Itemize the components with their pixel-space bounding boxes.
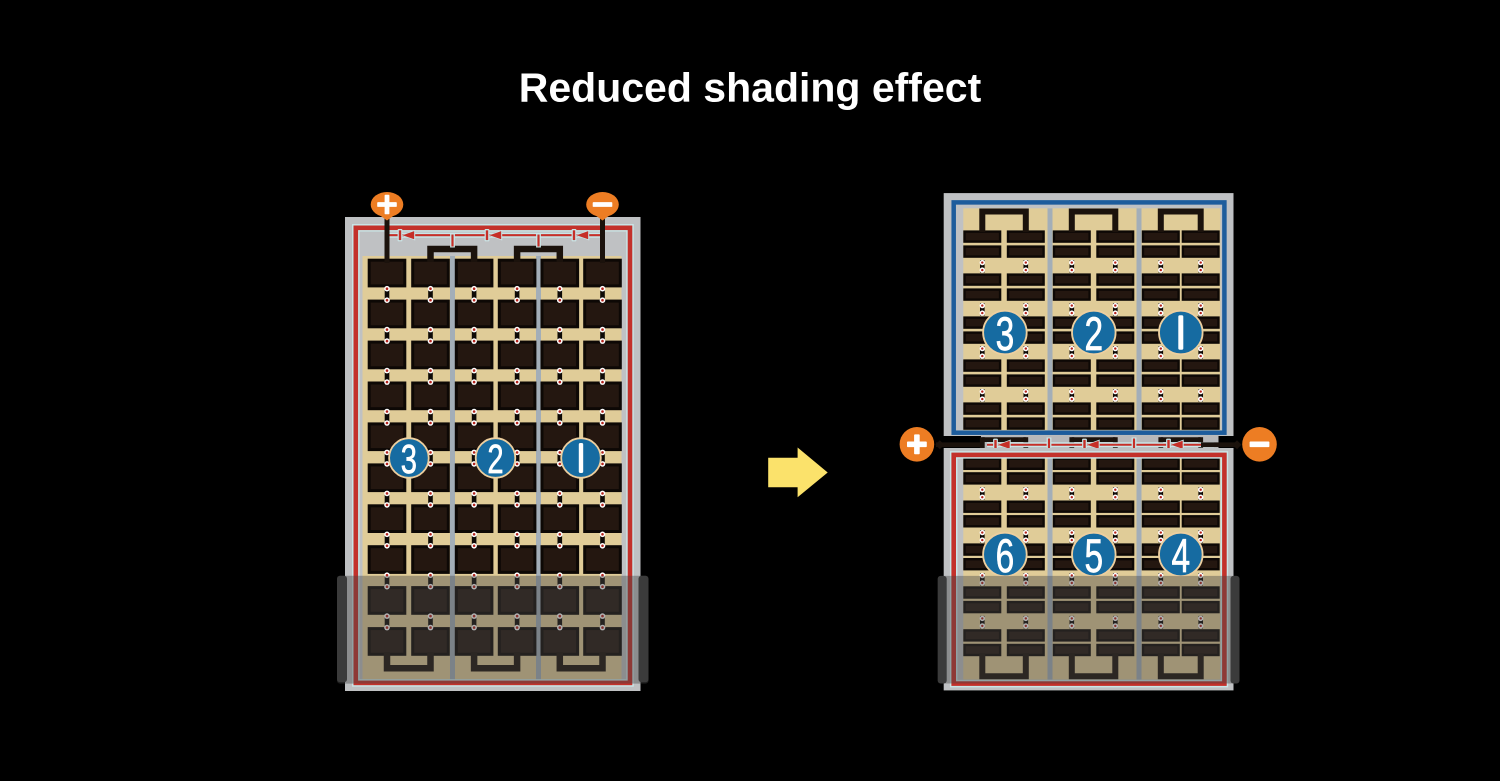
- svg-text:5: 5: [1085, 530, 1104, 583]
- svg-text:3: 3: [401, 436, 417, 482]
- svg-text:3: 3: [996, 308, 1015, 361]
- svg-text:Reduced shading effect: Reduced shading effect: [519, 65, 982, 111]
- svg-text:4: 4: [1172, 530, 1191, 583]
- svg-text:2: 2: [1085, 308, 1104, 361]
- svg-text:6: 6: [996, 530, 1015, 583]
- svg-text:2: 2: [487, 436, 503, 482]
